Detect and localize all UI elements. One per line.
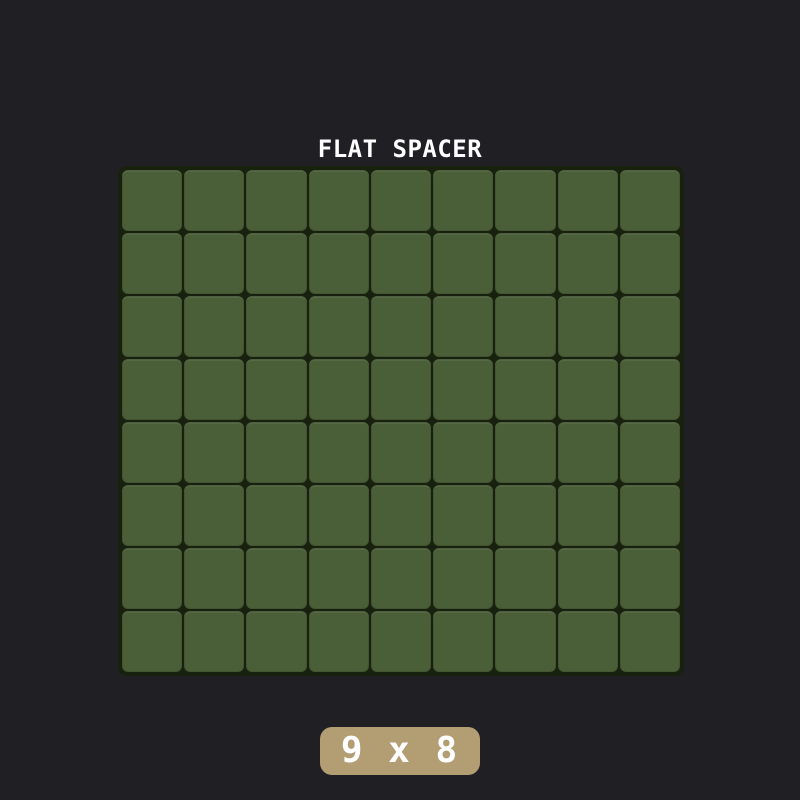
grid-cell	[246, 296, 306, 357]
grid-cell	[184, 170, 244, 231]
grid-cell	[433, 548, 493, 609]
grid-cell	[433, 170, 493, 231]
grid-cell	[495, 422, 555, 483]
grid-cell	[246, 611, 306, 672]
grid-cell	[371, 233, 431, 294]
grid-cell	[309, 548, 369, 609]
grid-cell	[122, 170, 182, 231]
grid-cell	[495, 611, 555, 672]
grid-cell	[433, 485, 493, 546]
grid-cell	[246, 548, 306, 609]
grid-cell	[620, 611, 680, 672]
spacer-grid	[118, 166, 684, 676]
grid-cell	[184, 611, 244, 672]
grid-cell	[122, 233, 182, 294]
grid-cell	[184, 485, 244, 546]
grid-cell	[309, 359, 369, 420]
part-title: FLAT SPACER	[0, 135, 800, 163]
grid-cell	[122, 485, 182, 546]
size-badge: 9 x 8	[320, 727, 480, 775]
grid-cell	[620, 422, 680, 483]
grid-cell	[620, 296, 680, 357]
grid-cell	[558, 233, 618, 294]
grid-cell	[620, 170, 680, 231]
grid-cell	[371, 548, 431, 609]
grid-cell	[495, 296, 555, 357]
grid-cell	[371, 359, 431, 420]
grid-cell	[309, 422, 369, 483]
grid-cell	[495, 548, 555, 609]
grid-cell	[558, 422, 618, 483]
grid-cell	[184, 296, 244, 357]
grid-cell	[371, 296, 431, 357]
grid-cell	[495, 170, 555, 231]
grid-cell	[620, 359, 680, 420]
part-preview-stage: FLAT SPACER 9 x 8	[0, 0, 800, 800]
grid-cell	[433, 422, 493, 483]
grid-cell	[433, 233, 493, 294]
grid-cell	[184, 233, 244, 294]
grid-cell	[433, 611, 493, 672]
grid-cell	[184, 548, 244, 609]
grid-cell	[309, 296, 369, 357]
grid-cell	[558, 611, 618, 672]
grid-cell	[620, 485, 680, 546]
grid-cell	[246, 233, 306, 294]
grid-cell	[433, 359, 493, 420]
grid-cell	[246, 422, 306, 483]
grid-cell	[558, 485, 618, 546]
grid-cell	[309, 170, 369, 231]
grid-cell	[309, 611, 369, 672]
grid-cell	[620, 548, 680, 609]
grid-cell	[558, 296, 618, 357]
grid-cell	[309, 485, 369, 546]
grid-cell	[122, 296, 182, 357]
grid-cell	[246, 170, 306, 231]
grid-cell	[184, 422, 244, 483]
grid-cell	[246, 485, 306, 546]
grid-cell	[371, 422, 431, 483]
grid-cell	[184, 359, 244, 420]
size-badge-label: 9 x 8	[341, 730, 459, 771]
grid-cell	[122, 359, 182, 420]
grid-cell	[371, 170, 431, 231]
grid-cell	[558, 359, 618, 420]
grid-cell	[495, 233, 555, 294]
grid-cell	[371, 485, 431, 546]
grid-cell	[620, 233, 680, 294]
grid-cell	[122, 422, 182, 483]
grid-cell	[371, 611, 431, 672]
grid-cell	[495, 359, 555, 420]
grid-cell	[122, 548, 182, 609]
grid-cell	[122, 611, 182, 672]
grid-cell	[558, 170, 618, 231]
grid-cell	[433, 296, 493, 357]
grid-cell	[309, 233, 369, 294]
grid-cell	[495, 485, 555, 546]
grid-cell	[246, 359, 306, 420]
grid-cell	[558, 548, 618, 609]
